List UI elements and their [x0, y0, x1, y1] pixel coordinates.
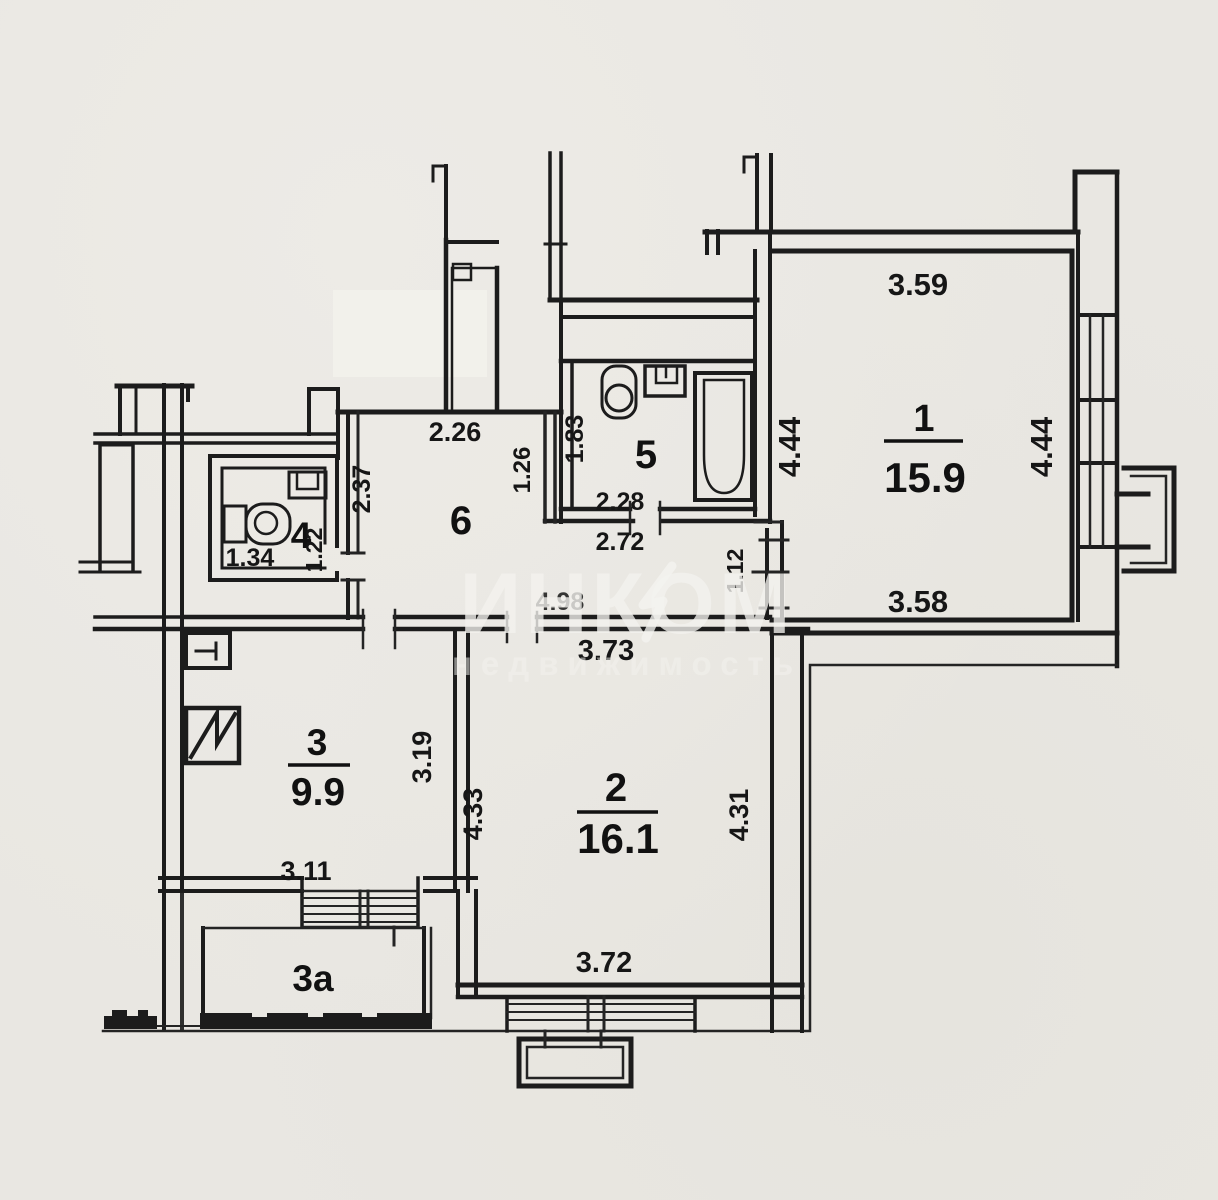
dim-room2-left: 4.33 — [458, 788, 488, 841]
dim-room2-right: 4.31 — [724, 789, 754, 842]
floor-plan-page: 1 15.9 3.59 4.44 4.44 3.58 5 1.83 2.28 2… — [0, 0, 1218, 1200]
room5-number-label: 5 — [635, 433, 657, 477]
floor-plan-svg: 1 15.9 3.59 4.44 4.44 3.58 5 1.83 2.28 2… — [0, 0, 1218, 1200]
dim-room6-top: 2.26 — [429, 417, 482, 447]
toilet-icon-room4 — [224, 504, 290, 544]
dim-room5-niche: 1.26 — [509, 447, 536, 494]
dim-room6-left: 2.37 — [348, 465, 376, 514]
room1-area-label: 15.9 — [884, 454, 966, 501]
electrical-panel-icon — [186, 633, 230, 668]
dim-room4-door: 1.22 — [301, 528, 327, 573]
room2-window — [507, 997, 695, 1031]
room6-number-label: 6 — [450, 499, 472, 543]
bathtub-icon — [695, 373, 752, 500]
dim-room1-bottom: 3.58 — [888, 584, 948, 619]
room3a-number-label: 3a — [292, 958, 334, 999]
room1-window — [1078, 315, 1117, 620]
dim-room3-bottom: 3.11 — [280, 856, 331, 886]
watermark: ИНКОМ недвижимость — [452, 556, 802, 682]
dim-room2-bottom: 3.72 — [576, 947, 632, 979]
dim-room4-width: 1.34 — [226, 544, 275, 572]
room2-number-label: 2 — [605, 766, 627, 810]
dim-room5-width-inner: 2.28 — [596, 488, 645, 516]
dim-room5-width-outer: 2.72 — [596, 528, 645, 556]
dim-room1-right: 4.44 — [1024, 416, 1059, 477]
balcony-3a-walls — [104, 928, 432, 1029]
watermark-subtitle: недвижимость — [452, 645, 802, 682]
room1-balcony — [1117, 468, 1174, 571]
room3-number-label: 3 — [307, 722, 328, 763]
watermark-brand: ИНКОМ — [460, 556, 795, 652]
dim-room1-left: 4.44 — [772, 416, 807, 477]
vent-shaft-icon — [186, 708, 239, 763]
room3-area-label: 9.9 — [291, 771, 345, 814]
room3-window — [160, 878, 418, 945]
redacted-area — [333, 290, 487, 377]
sink-icon-room5 — [645, 366, 685, 396]
dim-room5-depth: 1.83 — [561, 415, 589, 464]
sink-icon-room4 — [289, 472, 326, 498]
toilet-icon-room5 — [602, 366, 636, 418]
room2-area-label: 16.1 — [577, 815, 659, 862]
room2-balcony — [519, 1031, 631, 1086]
dim-room3-right: 3.19 — [407, 731, 437, 784]
dim-room1-top: 3.59 — [888, 267, 948, 302]
room1-number-label: 1 — [913, 398, 934, 440]
